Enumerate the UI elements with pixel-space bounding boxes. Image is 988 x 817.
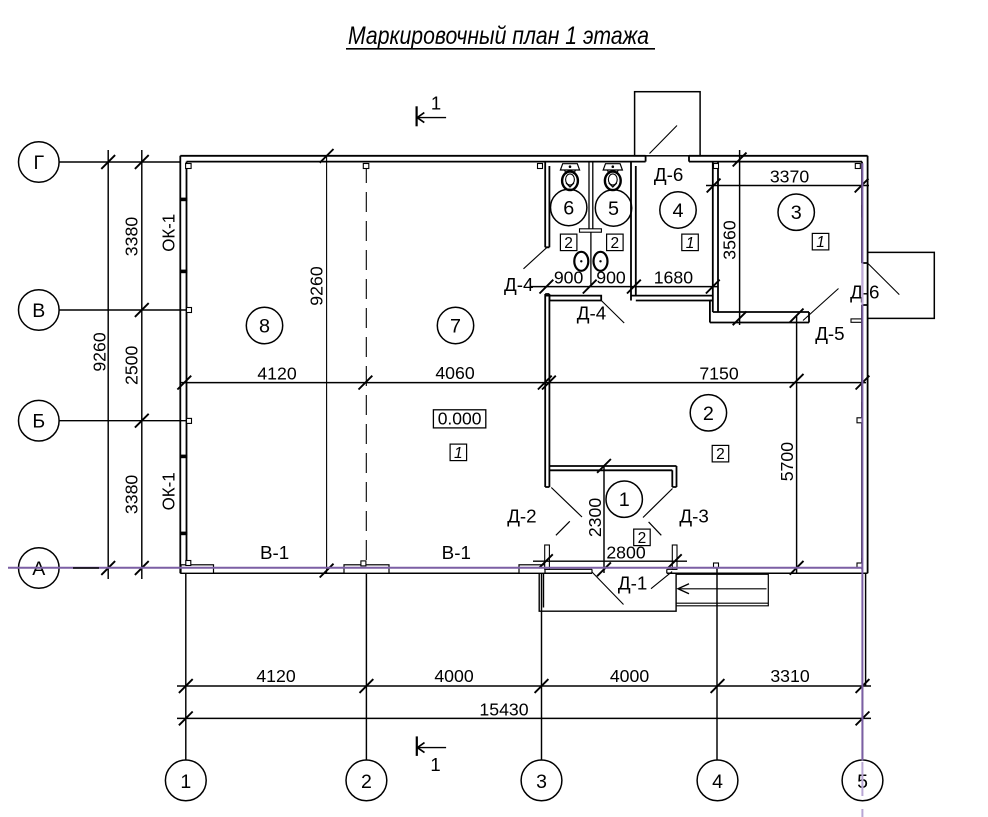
svg-text:Б: Б xyxy=(32,411,45,433)
svg-text:1: 1 xyxy=(619,489,630,511)
svg-text:6: 6 xyxy=(563,198,574,220)
svg-text:В: В xyxy=(32,300,45,322)
svg-text:3380: 3380 xyxy=(122,217,142,257)
svg-text:Маркировочный план 1 этажа: Маркировочный план 1 этажа xyxy=(348,23,649,50)
svg-text:2: 2 xyxy=(610,235,619,252)
svg-text:Д-4: Д-4 xyxy=(504,274,533,295)
svg-text:4060: 4060 xyxy=(435,363,475,383)
svg-text:Д-2: Д-2 xyxy=(507,505,536,526)
svg-text:Г: Г xyxy=(34,152,45,174)
svg-text:0.000: 0.000 xyxy=(438,409,482,429)
svg-text:Д-3: Д-3 xyxy=(679,505,708,526)
svg-text:9260: 9260 xyxy=(89,332,109,372)
svg-text:7: 7 xyxy=(450,316,461,338)
svg-text:900: 900 xyxy=(596,268,626,288)
svg-text:1: 1 xyxy=(454,445,463,462)
svg-text:1680: 1680 xyxy=(654,267,694,287)
svg-text:3310: 3310 xyxy=(770,666,810,686)
svg-text:2: 2 xyxy=(716,446,725,463)
svg-text:900: 900 xyxy=(554,268,584,288)
svg-text:3370: 3370 xyxy=(770,166,810,186)
svg-text:2: 2 xyxy=(638,530,647,547)
svg-text:3: 3 xyxy=(536,771,547,793)
svg-text:Д-6: Д-6 xyxy=(850,281,879,302)
svg-text:1: 1 xyxy=(431,93,441,114)
svg-text:2: 2 xyxy=(703,403,714,425)
svg-text:2300: 2300 xyxy=(585,498,605,538)
svg-text:1: 1 xyxy=(180,771,191,793)
svg-text:ОК-1: ОК-1 xyxy=(159,472,179,510)
svg-text:4120: 4120 xyxy=(257,364,297,384)
svg-text:4000: 4000 xyxy=(434,666,474,686)
svg-text:3380: 3380 xyxy=(122,475,142,515)
svg-text:В-1: В-1 xyxy=(442,542,471,563)
svg-text:А: А xyxy=(32,558,45,580)
svg-text:4: 4 xyxy=(672,200,683,222)
svg-text:В-1: В-1 xyxy=(260,542,289,563)
svg-text:5: 5 xyxy=(608,198,619,220)
svg-text:5700: 5700 xyxy=(777,442,797,482)
svg-text:1: 1 xyxy=(816,234,825,251)
svg-text:3560: 3560 xyxy=(720,220,740,260)
svg-text:9260: 9260 xyxy=(307,266,327,306)
svg-text:4000: 4000 xyxy=(610,666,650,686)
svg-text:Д-4: Д-4 xyxy=(577,303,606,324)
svg-text:2: 2 xyxy=(361,771,372,793)
svg-text:7150: 7150 xyxy=(699,364,739,384)
svg-text:3: 3 xyxy=(791,202,802,224)
svg-text:Д-1: Д-1 xyxy=(618,573,647,594)
svg-text:1: 1 xyxy=(430,754,440,775)
svg-text:2: 2 xyxy=(564,235,573,252)
svg-text:15430: 15430 xyxy=(479,700,528,720)
svg-text:1: 1 xyxy=(686,235,695,252)
svg-text:4120: 4120 xyxy=(256,666,296,686)
svg-text:4: 4 xyxy=(712,771,723,793)
svg-text:Д-5: Д-5 xyxy=(815,323,844,344)
svg-text:8: 8 xyxy=(259,316,270,338)
svg-text:2500: 2500 xyxy=(122,345,142,385)
svg-text:ОК-1: ОК-1 xyxy=(159,214,179,252)
svg-text:Д-6: Д-6 xyxy=(654,164,683,185)
